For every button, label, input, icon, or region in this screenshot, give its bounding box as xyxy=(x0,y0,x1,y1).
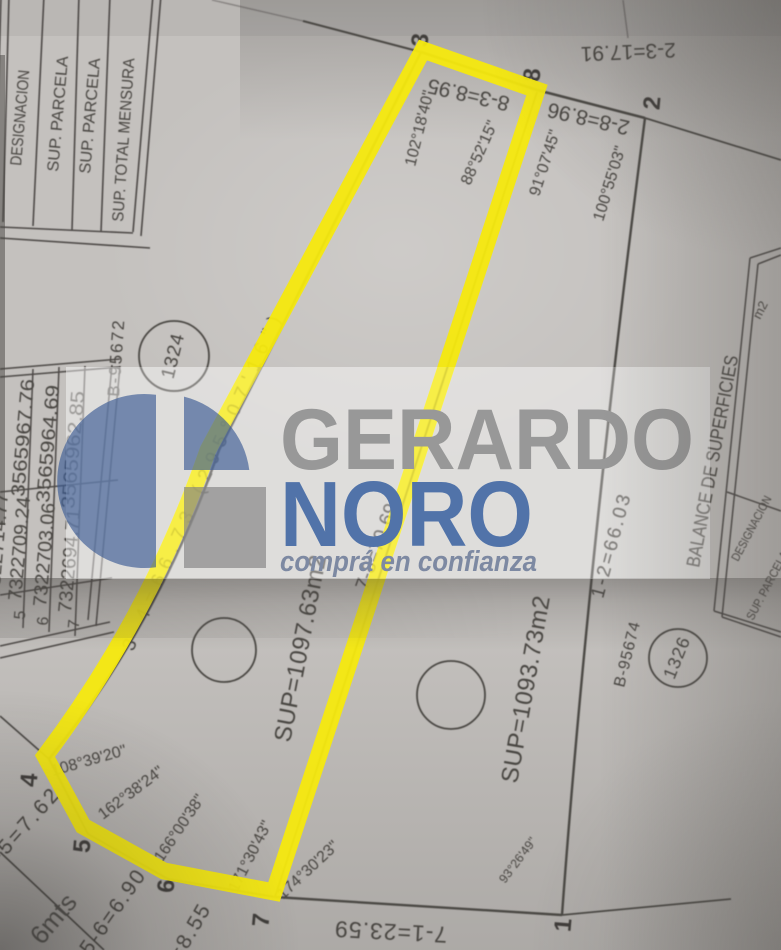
svg-text:comprá en confianza: comprá en confianza xyxy=(280,546,537,578)
